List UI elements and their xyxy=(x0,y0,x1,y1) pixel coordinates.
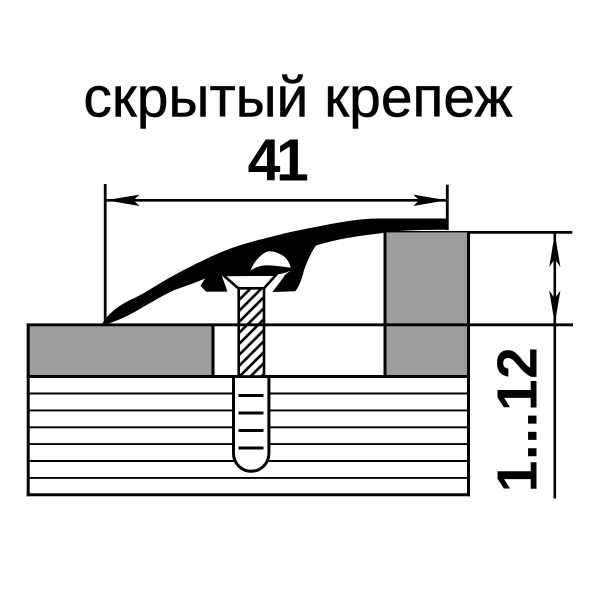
svg-text:41: 41 xyxy=(248,127,308,193)
svg-text:скрытый крепеж: скрытый крепеж xyxy=(83,66,512,130)
svg-text:1...12: 1...12 xyxy=(486,347,550,493)
